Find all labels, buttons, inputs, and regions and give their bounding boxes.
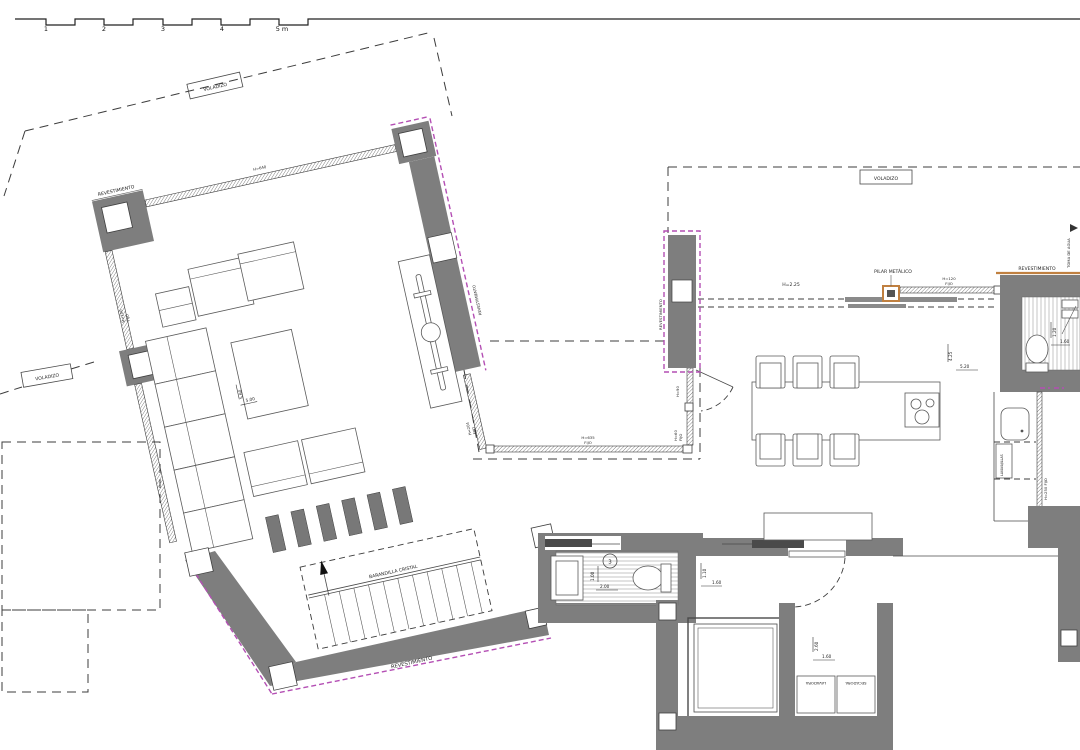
kitchen-side-window-label: H=250 FIJO xyxy=(1043,478,1048,500)
scale-tick-2: 2 xyxy=(102,25,106,33)
cooktop xyxy=(905,393,939,427)
wc-width-dim: 1.60 xyxy=(1060,339,1070,344)
washer-label: LAVADORA xyxy=(805,681,826,686)
entry-window-upper-label: H=90 xyxy=(675,386,680,397)
voladizo-label-left: VOLADIZO xyxy=(21,364,73,387)
pocket-door-leaf xyxy=(752,540,804,548)
revestimiento-entrance-text: REVESTIMIENTO xyxy=(658,299,663,330)
bottom-wall-band: REVESTIMIENTO xyxy=(185,548,551,694)
hall-width-dim: 1.60 xyxy=(712,580,722,585)
scale-tick-1: 1 xyxy=(44,25,48,33)
bath-toilet xyxy=(633,564,671,592)
window-left-upper xyxy=(105,250,133,349)
dining-chair xyxy=(793,356,822,388)
revestimiento-wc-text: REVESTIMIENTO xyxy=(1018,266,1056,272)
exterior-steps xyxy=(265,487,412,553)
bath-sink xyxy=(551,556,583,600)
dining-set: 4.25 5.20 xyxy=(752,344,978,466)
hall-counter xyxy=(764,513,872,540)
water-intake-marker xyxy=(1070,224,1078,232)
washer: LAVADORA xyxy=(797,676,835,713)
low-wall-bench xyxy=(845,297,957,302)
laundry-depth-dim: 2.60 xyxy=(814,641,819,651)
sliding-door-leaf xyxy=(545,539,592,547)
room-number: 3 xyxy=(608,560,612,566)
entrance-wall: REVESTIMIENTO xyxy=(658,231,700,372)
bath-width-dim: 2.00 xyxy=(600,584,610,589)
kitchen-sink xyxy=(1001,408,1029,440)
window-bottom-label2: FIJO xyxy=(584,440,591,445)
voladizo-label-top: VOLADIZO xyxy=(187,72,243,99)
right-lower-structure xyxy=(893,506,1080,662)
kitchen-depth-dim: 4.25 xyxy=(948,351,953,361)
dining-chair xyxy=(793,434,822,466)
entry-door xyxy=(696,370,733,411)
dishwasher-label: LAVAVAJILLAS xyxy=(1000,454,1004,476)
voladizo-left-text: VOLADIZO xyxy=(35,372,60,382)
window-top-label: H=640 xyxy=(253,164,268,172)
kitchen-window-label2: FIJO xyxy=(945,281,952,286)
entry-window-lower-label2: FIJO xyxy=(678,434,683,441)
voladizo-right-text: VOLADIZO xyxy=(874,176,899,182)
kitchen-width-dim: 5.20 xyxy=(960,364,970,369)
laundry-width-dim: 1.60 xyxy=(822,654,832,659)
hall-depth-dim: 1.10 xyxy=(702,568,707,578)
floor-plan: 1 2 3 4 5 m VOLADIZO VOLADIZO VOLADIZO xyxy=(0,0,1080,750)
dining-chair xyxy=(756,434,785,466)
coffee-table xyxy=(231,329,308,419)
dryer: SECADORA xyxy=(837,676,875,713)
scale-bar: 1 2 3 4 5 m xyxy=(15,19,1080,33)
swing-door-leaf xyxy=(789,551,845,557)
scale-tick-3: 3 xyxy=(161,25,165,33)
hallway: 1.10 1.60 xyxy=(696,513,903,607)
dishwasher xyxy=(996,444,1012,478)
terrace-outline-upper xyxy=(2,442,160,610)
window-diagonal xyxy=(463,374,486,450)
water-intake-label: TOMA DE AGUA xyxy=(1066,238,1071,269)
laundry-room: LAVADORA SECADORA 2.60 1.60 xyxy=(779,603,893,717)
kitchen-counter: LAVAVAJILLAS H=250 FIJO xyxy=(994,388,1064,521)
dining-chair xyxy=(830,356,859,388)
south-glazing: H=635 FIJO H=90 H=60 FIJO xyxy=(486,368,693,453)
headroom-label: H=2.25 xyxy=(782,282,800,288)
dining-chair xyxy=(756,356,785,388)
revestimiento-rightwall-text: REVESTIMIENTO xyxy=(471,285,483,316)
kitchen-north: H=120 FIJO PILAR METÁLICO H=2.25 xyxy=(782,268,1002,308)
living-wing: REVESTIMIENTO H=640 REVESTIMIENTO H=100 … xyxy=(84,110,566,677)
floor-plan-svg: 1 2 3 4 5 m VOLADIZO VOLADIZO VOLADIZO xyxy=(0,0,1080,750)
scale-tick-5m: 5 m xyxy=(276,25,289,33)
scale-tick-4: 4 xyxy=(220,25,224,33)
bathroom-3: 3 1.00 2.00 xyxy=(538,533,703,623)
terrace-outline-lower xyxy=(2,610,88,692)
dining-chair xyxy=(830,434,859,466)
wc-topright: REVESTIMIENTO TOMA DE AGUA 1.20 1.60 xyxy=(996,224,1080,392)
wc-depth-dim: 1.20 xyxy=(1052,327,1057,337)
steel-pillar-label: PILAR METÁLICO xyxy=(874,268,912,275)
window-top xyxy=(145,145,396,207)
dryer-label: SECADORA xyxy=(845,681,866,686)
bath-depth-dim: 1.00 xyxy=(590,571,595,581)
voladizo-label-right: VOLADIZO xyxy=(860,170,912,184)
window-left-label2: FIJO xyxy=(124,314,130,322)
wc-toilet xyxy=(1026,335,1048,363)
